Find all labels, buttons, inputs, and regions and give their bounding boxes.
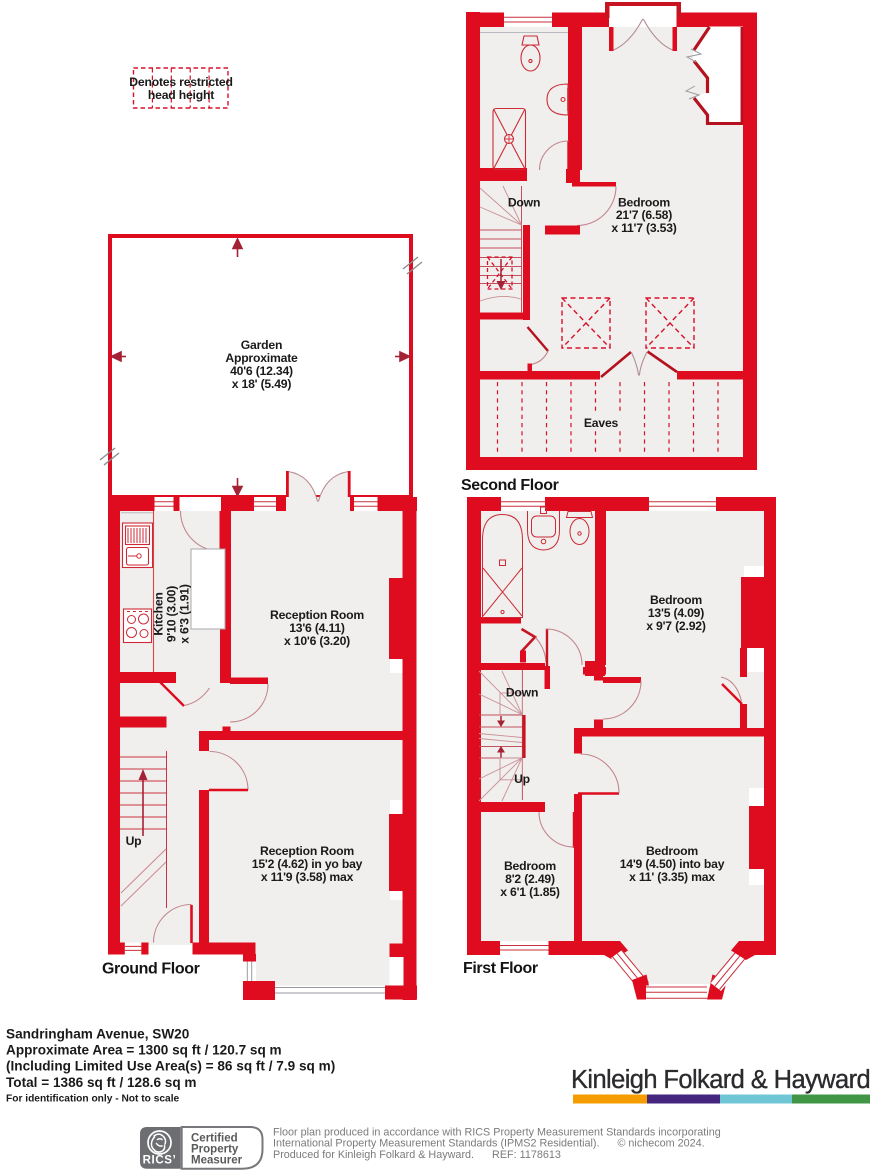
svg-text:x 10'6 (3.20): x 10'6 (3.20) bbox=[284, 634, 350, 648]
svg-text:21'7 (6.58): 21'7 (6.58) bbox=[616, 208, 672, 222]
svg-text:13'5 (4.09): 13'5 (4.09) bbox=[648, 606, 704, 620]
svg-text:Reception Room: Reception Room bbox=[260, 844, 354, 858]
svg-text:RICS’: RICS’ bbox=[143, 1155, 177, 1167]
svg-text:Denotes restricted: Denotes restricted bbox=[129, 75, 232, 89]
svg-text:head height: head height bbox=[148, 88, 214, 102]
svg-text:Ground Floor: Ground Floor bbox=[102, 961, 200, 978]
svg-text:13'6 (4.11): 13'6 (4.11) bbox=[289, 621, 345, 635]
svg-text:Produced for Kinleigh Folkard: Produced for Kinleigh Folkard & Hayward.… bbox=[273, 1149, 561, 1161]
svg-text:Bedroom: Bedroom bbox=[504, 859, 556, 873]
svg-text:15'2 (4.62) in yo bay: 15'2 (4.62) in yo bay bbox=[252, 857, 363, 871]
svg-text:Eaves: Eaves bbox=[584, 416, 619, 430]
svg-text:(Including Limited Use Area(s): (Including Limited Use Area(s) = 86 sq f… bbox=[6, 1059, 335, 1074]
svg-text:x 18' (5.49): x 18' (5.49) bbox=[232, 377, 292, 391]
svg-text:Measurer: Measurer bbox=[191, 1155, 243, 1167]
svg-text:Approximate Area = 1300 sq ft: Approximate Area = 1300 sq ft / 120.7 sq… bbox=[6, 1043, 282, 1058]
svg-text:First Floor: First Floor bbox=[463, 960, 538, 977]
svg-text:14'9 (4.50) into bay: 14'9 (4.50) into bay bbox=[620, 857, 725, 871]
svg-text:Approximate: Approximate bbox=[225, 351, 298, 365]
svg-text:Kinleigh Folkard & Hayward: Kinleigh Folkard & Hayward bbox=[571, 1066, 870, 1094]
svg-text:Sandringham Avenue, SW20: Sandringham Avenue, SW20 bbox=[6, 1027, 189, 1042]
svg-text:Garden: Garden bbox=[241, 338, 282, 352]
svg-text:9'10 (3.00): 9'10 (3.00) bbox=[165, 586, 179, 642]
svg-text:x 11'7 (3.53): x 11'7 (3.53) bbox=[611, 221, 676, 235]
svg-text:8'2 (2.49): 8'2 (2.49) bbox=[505, 872, 555, 886]
svg-text:Bedroom: Bedroom bbox=[646, 844, 698, 858]
svg-text:x 11' (3.35) max: x 11' (3.35) max bbox=[629, 870, 715, 884]
svg-text:For identification only - Not: For identification only - Not to scale bbox=[6, 1094, 180, 1105]
svg-text:Total = 1386 sq ft / 128.6 sq: Total = 1386 sq ft / 128.6 sq m bbox=[6, 1075, 197, 1090]
svg-text:Up: Up bbox=[126, 834, 142, 848]
svg-text:Kitchen: Kitchen bbox=[152, 592, 166, 635]
svg-text:Down: Down bbox=[506, 686, 538, 700]
svg-text:Up: Up bbox=[514, 772, 530, 786]
svg-text:Reception Room: Reception Room bbox=[270, 608, 364, 622]
svg-text:x 6'1 (1.85): x 6'1 (1.85) bbox=[500, 885, 560, 899]
svg-text:40'6 (12.34): 40'6 (12.34) bbox=[230, 364, 293, 378]
svg-text:x 9'7 (2.92): x 9'7 (2.92) bbox=[646, 619, 706, 633]
svg-text:x 11'9 (3.58) max: x 11'9 (3.58) max bbox=[261, 870, 354, 884]
svg-text:x 6'3 (1.91): x 6'3 (1.91) bbox=[178, 584, 192, 644]
svg-text:International Property Measure: International Property Measurement Stand… bbox=[273, 1137, 705, 1149]
svg-text:Down: Down bbox=[508, 196, 540, 210]
svg-text:Second Floor: Second Floor bbox=[461, 477, 559, 494]
svg-text:Bedroom: Bedroom bbox=[650, 593, 702, 607]
